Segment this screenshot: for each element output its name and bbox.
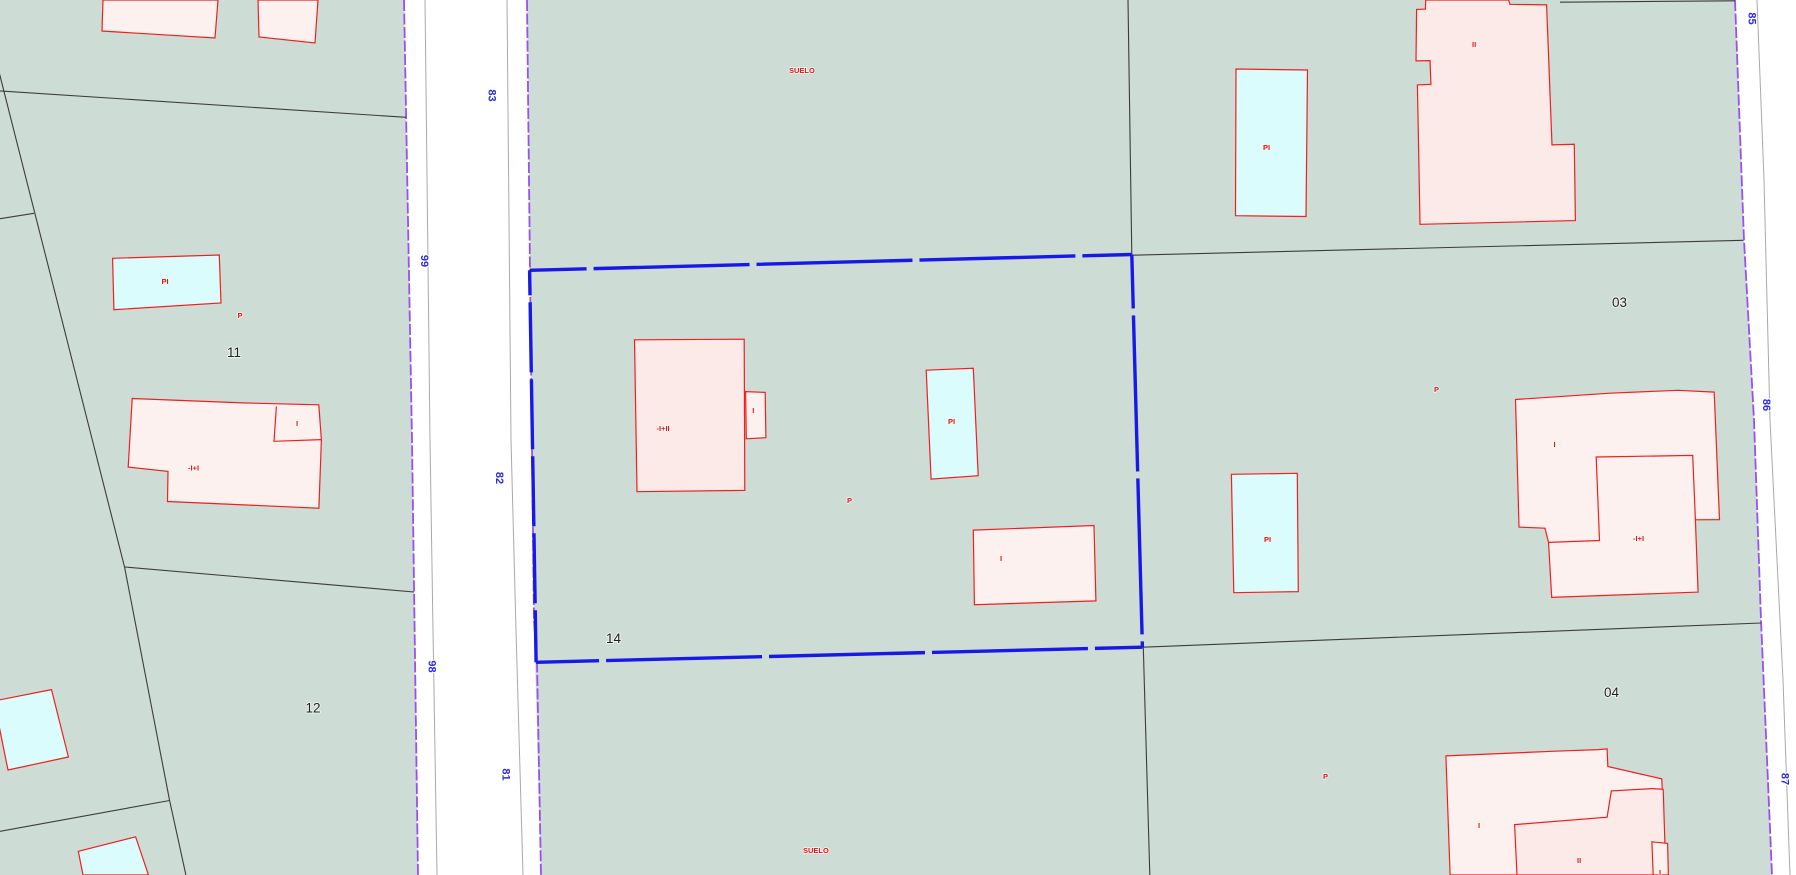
svg-text:P: P [238, 311, 243, 320]
svg-text:SUELO: SUELO [789, 66, 815, 75]
svg-text:PI: PI [162, 277, 169, 286]
svg-text:I: I [1000, 554, 1002, 563]
svg-text:II: II [1577, 856, 1581, 865]
svg-text:PI: PI [1264, 535, 1271, 544]
svg-text:86: 86 [1760, 399, 1772, 411]
svg-text:PI: PI [1263, 143, 1270, 152]
svg-text:-I+II: -I+II [657, 424, 670, 433]
svg-text:P: P [1323, 772, 1328, 781]
svg-text:11: 11 [227, 345, 241, 360]
svg-text:PI: PI [948, 417, 955, 426]
svg-text:SUELO: SUELO [803, 846, 829, 855]
svg-text:I: I [1554, 440, 1556, 449]
svg-text:I: I [296, 419, 298, 428]
svg-text:-I+I: -I+I [1633, 534, 1644, 543]
svg-text:12: 12 [306, 701, 321, 716]
svg-text:14: 14 [606, 631, 622, 646]
svg-text:-I+I: -I+I [188, 464, 199, 473]
svg-text:I: I [752, 406, 754, 415]
svg-text:98: 98 [426, 660, 438, 672]
svg-text:81: 81 [500, 768, 512, 780]
svg-text:P: P [1434, 385, 1439, 394]
svg-text:83: 83 [486, 89, 498, 101]
svg-text:II: II [1472, 40, 1476, 49]
svg-text:82: 82 [493, 472, 505, 484]
svg-text:I: I [1478, 821, 1480, 830]
svg-text:85: 85 [1746, 12, 1758, 24]
svg-text:I: I [1659, 868, 1661, 875]
svg-text:P: P [847, 496, 852, 505]
svg-text:04: 04 [1604, 685, 1620, 700]
svg-text:03: 03 [1612, 295, 1627, 310]
svg-text:99: 99 [418, 255, 430, 267]
svg-text:87: 87 [1779, 773, 1791, 785]
